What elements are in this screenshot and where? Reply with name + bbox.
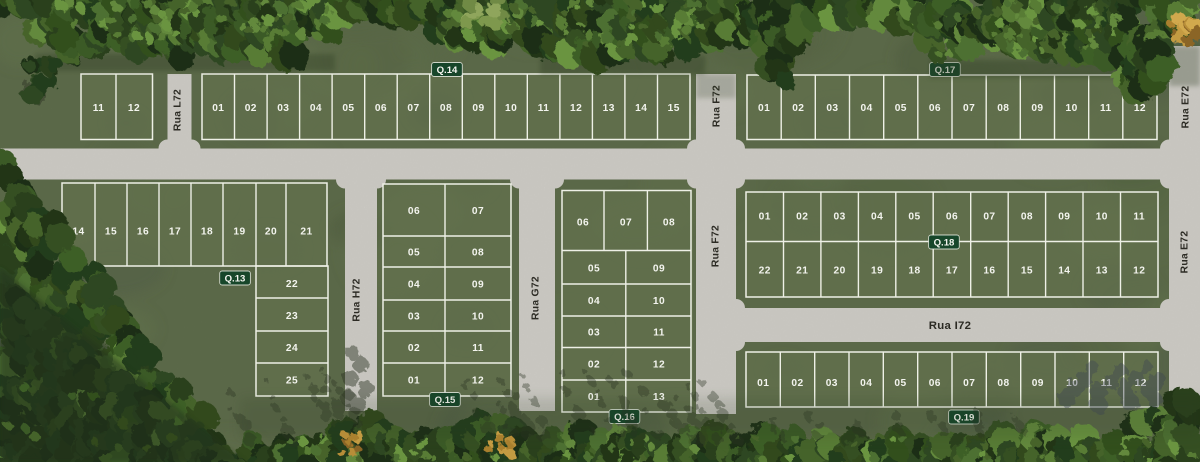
svg-text:08: 08 — [663, 218, 675, 229]
svg-text:Rua I72: Rua I72 — [929, 320, 972, 332]
svg-text:02: 02 — [408, 343, 420, 354]
svg-text:07: 07 — [983, 212, 995, 223]
svg-text:12: 12 — [570, 103, 582, 114]
svg-text:09: 09 — [472, 103, 484, 114]
svg-text:Rua H72: Rua H72 — [352, 278, 363, 321]
svg-text:09: 09 — [1058, 212, 1070, 223]
svg-text:10: 10 — [653, 296, 665, 307]
svg-text:12: 12 — [472, 376, 484, 387]
svg-text:08: 08 — [997, 378, 1009, 389]
svg-text:04: 04 — [588, 296, 600, 307]
svg-text:12: 12 — [128, 103, 140, 114]
svg-text:01: 01 — [408, 376, 420, 387]
svg-text:Q.18: Q.18 — [934, 238, 955, 249]
svg-text:06: 06 — [929, 378, 941, 389]
svg-text:25: 25 — [286, 376, 298, 387]
svg-text:06: 06 — [929, 103, 941, 114]
svg-text:07: 07 — [963, 378, 975, 389]
svg-text:18: 18 — [908, 266, 920, 277]
svg-text:09: 09 — [1032, 378, 1044, 389]
svg-text:11: 11 — [93, 103, 105, 114]
svg-text:15: 15 — [105, 227, 117, 238]
svg-text:05: 05 — [588, 264, 600, 275]
svg-text:04: 04 — [408, 280, 420, 291]
svg-text:03: 03 — [826, 103, 838, 114]
svg-text:03: 03 — [277, 103, 289, 114]
svg-text:15: 15 — [1021, 266, 1033, 277]
svg-text:Q.13: Q.13 — [225, 274, 246, 285]
svg-text:22: 22 — [286, 279, 298, 290]
svg-text:17: 17 — [169, 227, 181, 238]
svg-text:14: 14 — [1058, 266, 1070, 277]
svg-text:09: 09 — [472, 280, 484, 291]
svg-text:02: 02 — [791, 378, 803, 389]
svg-text:07: 07 — [620, 218, 632, 229]
svg-text:11: 11 — [538, 103, 550, 114]
svg-text:03: 03 — [826, 378, 838, 389]
svg-text:Q.14: Q.14 — [437, 65, 458, 76]
svg-text:21: 21 — [796, 266, 808, 277]
svg-text:12: 12 — [1133, 266, 1145, 277]
svg-text:10: 10 — [472, 312, 484, 323]
svg-text:06: 06 — [408, 206, 420, 217]
svg-text:24: 24 — [286, 343, 298, 354]
svg-text:20: 20 — [265, 227, 277, 238]
svg-text:02: 02 — [796, 212, 808, 223]
svg-text:13: 13 — [603, 103, 615, 114]
svg-text:Rua F72: Rua F72 — [711, 225, 722, 267]
svg-text:04: 04 — [310, 103, 322, 114]
svg-text:16: 16 — [137, 227, 149, 238]
svg-text:13: 13 — [1096, 266, 1108, 277]
svg-text:21: 21 — [300, 227, 312, 238]
svg-text:05: 05 — [894, 378, 906, 389]
svg-text:16: 16 — [983, 266, 995, 277]
svg-text:02: 02 — [588, 360, 600, 371]
svg-text:02: 02 — [245, 103, 257, 114]
svg-text:08: 08 — [997, 103, 1009, 114]
svg-text:19: 19 — [233, 227, 245, 238]
svg-text:Rua G72: Rua G72 — [531, 276, 542, 320]
svg-text:01: 01 — [759, 212, 771, 223]
svg-text:01: 01 — [758, 103, 770, 114]
svg-text:19: 19 — [871, 266, 883, 277]
svg-text:11: 11 — [653, 328, 665, 339]
svg-text:08: 08 — [1021, 212, 1033, 223]
svg-text:09: 09 — [1031, 103, 1043, 114]
svg-text:12: 12 — [653, 360, 665, 371]
svg-text:02: 02 — [792, 103, 804, 114]
svg-text:05: 05 — [908, 212, 920, 223]
svg-text:10: 10 — [1066, 103, 1078, 114]
svg-text:03: 03 — [408, 312, 420, 323]
svg-text:01: 01 — [212, 103, 224, 114]
svg-text:23: 23 — [286, 311, 298, 322]
svg-text:08: 08 — [440, 103, 452, 114]
svg-text:06: 06 — [946, 212, 958, 223]
svg-text:08: 08 — [472, 248, 484, 259]
svg-text:22: 22 — [759, 266, 771, 277]
svg-text:11: 11 — [472, 343, 484, 354]
svg-text:14: 14 — [635, 103, 647, 114]
svg-text:Rua E72: Rua E72 — [1180, 231, 1191, 274]
svg-text:07: 07 — [963, 103, 975, 114]
svg-text:01: 01 — [757, 378, 769, 389]
svg-text:05: 05 — [408, 248, 420, 259]
svg-text:04: 04 — [871, 212, 883, 223]
svg-text:03: 03 — [834, 212, 846, 223]
svg-text:11: 11 — [1100, 103, 1112, 114]
svg-text:10: 10 — [505, 103, 517, 114]
svg-text:06: 06 — [375, 103, 387, 114]
svg-text:03: 03 — [588, 328, 600, 339]
svg-text:Rua E72: Rua E72 — [1181, 86, 1192, 129]
svg-text:04: 04 — [860, 378, 872, 389]
svg-text:05: 05 — [342, 103, 354, 114]
svg-text:15: 15 — [668, 103, 680, 114]
svg-text:04: 04 — [861, 103, 873, 114]
svg-text:17: 17 — [946, 266, 958, 277]
svg-text:10: 10 — [1096, 212, 1108, 223]
svg-text:11: 11 — [1133, 212, 1145, 223]
svg-text:07: 07 — [407, 103, 419, 114]
svg-text:05: 05 — [895, 103, 907, 114]
svg-text:20: 20 — [834, 266, 846, 277]
svg-text:07: 07 — [472, 206, 484, 217]
svg-text:Rua L72: Rua L72 — [173, 89, 184, 131]
svg-text:09: 09 — [653, 264, 665, 275]
svg-text:18: 18 — [201, 227, 213, 238]
svg-text:06: 06 — [577, 218, 589, 229]
